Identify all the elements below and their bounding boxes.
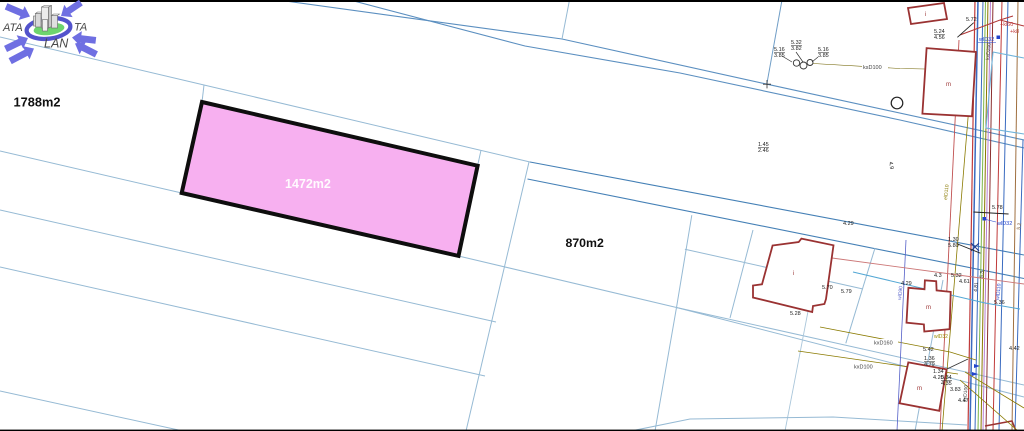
svg-text:i: i: [925, 12, 926, 18]
svg-text:4.61: 4.61: [959, 279, 970, 285]
svg-text:5.78: 5.78: [992, 205, 1003, 211]
svg-text:m: m: [946, 82, 951, 88]
svg-text:kxD160: kxD160: [874, 341, 893, 347]
svg-text:5.72: 5.72: [966, 17, 977, 23]
svg-text:5.80: 5.80: [948, 243, 959, 249]
svg-text:5.42: 5.42: [923, 347, 934, 353]
svg-text:3.82: 3.82: [791, 46, 802, 52]
svg-text:wlD32: wlD32: [978, 37, 994, 43]
svg-text:+kl60: +kl60: [1000, 22, 1013, 28]
svg-text:4.79: 4.79: [924, 362, 935, 368]
svg-text:TA: TA: [74, 22, 87, 34]
svg-text:3.83: 3.83: [950, 387, 961, 393]
svg-text:wlD32: wlD32: [934, 334, 948, 340]
svg-text:LAN: LAN: [44, 37, 69, 51]
svg-text:m: m: [926, 305, 931, 311]
svg-text:2.46: 2.46: [758, 148, 769, 154]
svg-text:5.36: 5.36: [994, 300, 1005, 306]
svg-text:870m2: 870m2: [566, 236, 604, 250]
svg-text:3.85: 3.85: [774, 53, 785, 59]
svg-text:4.29: 4.29: [843, 221, 854, 227]
svg-text:5.79: 5.79: [841, 289, 852, 295]
svg-text:1472m2: 1472m2: [285, 177, 331, 191]
svg-text:5.2: 5.2: [1016, 222, 1023, 230]
svg-text:4.81: 4.81: [973, 282, 980, 293]
svg-text:4.20: 4.20: [933, 375, 944, 381]
svg-text:5.3: 5.3: [979, 270, 986, 278]
svg-text:1788m2: 1788m2: [14, 95, 61, 110]
svg-text:4.42: 4.42: [1009, 346, 1020, 352]
svg-text:4.3: 4.3: [934, 273, 942, 279]
svg-text:kxD100: kxD100: [854, 365, 873, 371]
svg-text:4.56: 4.56: [934, 35, 945, 41]
svg-text:m: m: [917, 386, 922, 392]
svg-text:5.70: 5.70: [822, 285, 833, 291]
svg-text:3.85: 3.85: [818, 53, 829, 59]
svg-text:4.29: 4.29: [901, 281, 912, 287]
svg-text:wlD32: wlD32: [996, 221, 1012, 227]
svg-text:ATA: ATA: [2, 22, 23, 34]
svg-text:ksD100: ksD100: [863, 65, 882, 71]
svg-text:4.47: 4.47: [958, 398, 969, 404]
svg-text:+k8: +k8: [1010, 29, 1019, 35]
svg-text:i: i: [793, 271, 794, 277]
svg-text:5.28: 5.28: [790, 311, 801, 317]
